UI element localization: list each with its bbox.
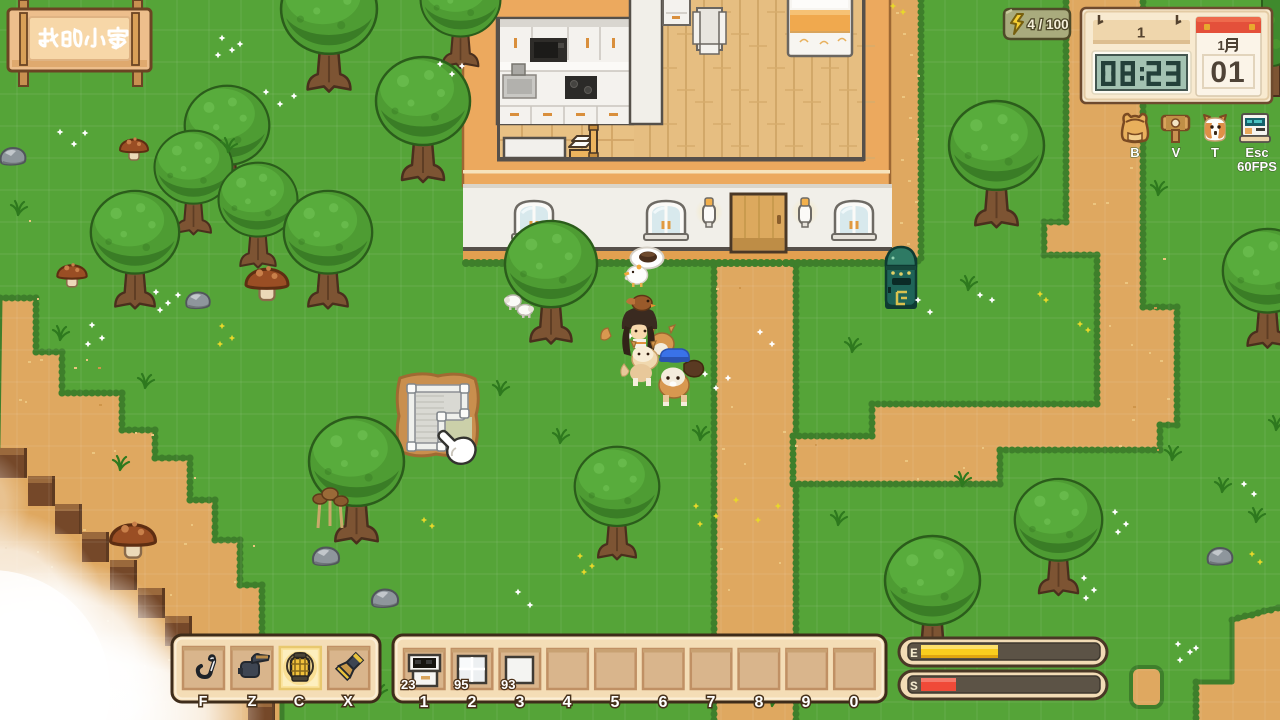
svg-text:Z: Z — [248, 694, 257, 710]
svg-text:F: F — [199, 694, 208, 710]
svg-text:Esc: Esc — [1245, 145, 1268, 160]
svg-text:5: 5 — [611, 694, 620, 711]
svg-text:E: E — [910, 646, 918, 661]
svg-text:0: 0 — [850, 694, 859, 711]
svg-text:X: X — [343, 694, 353, 710]
svg-text:V: V — [1172, 145, 1181, 160]
svg-text:3: 3 — [516, 694, 525, 711]
svg-text:9: 9 — [802, 694, 811, 711]
svg-text:2: 2 — [468, 694, 477, 711]
svg-text:60FPS: 60FPS — [1237, 159, 1277, 174]
svg-text:C: C — [294, 694, 305, 710]
svg-text:1: 1 — [420, 694, 429, 711]
svg-text:4 / 100: 4 / 100 — [1027, 17, 1068, 32]
svg-text:1: 1 — [1137, 25, 1145, 42]
svg-text:8: 8 — [755, 694, 764, 711]
svg-text:S: S — [910, 679, 918, 694]
svg-text:95: 95 — [454, 677, 468, 692]
svg-text:7: 7 — [707, 694, 716, 711]
svg-text:1: 1 — [1217, 38, 1224, 53]
svg-text:T: T — [1211, 145, 1219, 160]
svg-text:01: 01 — [1210, 56, 1245, 89]
svg-text:4: 4 — [563, 694, 572, 711]
svg-text:93: 93 — [501, 677, 515, 692]
svg-text:23: 23 — [401, 677, 415, 692]
svg-text:6: 6 — [659, 694, 668, 711]
svg-text:B: B — [1130, 145, 1139, 160]
